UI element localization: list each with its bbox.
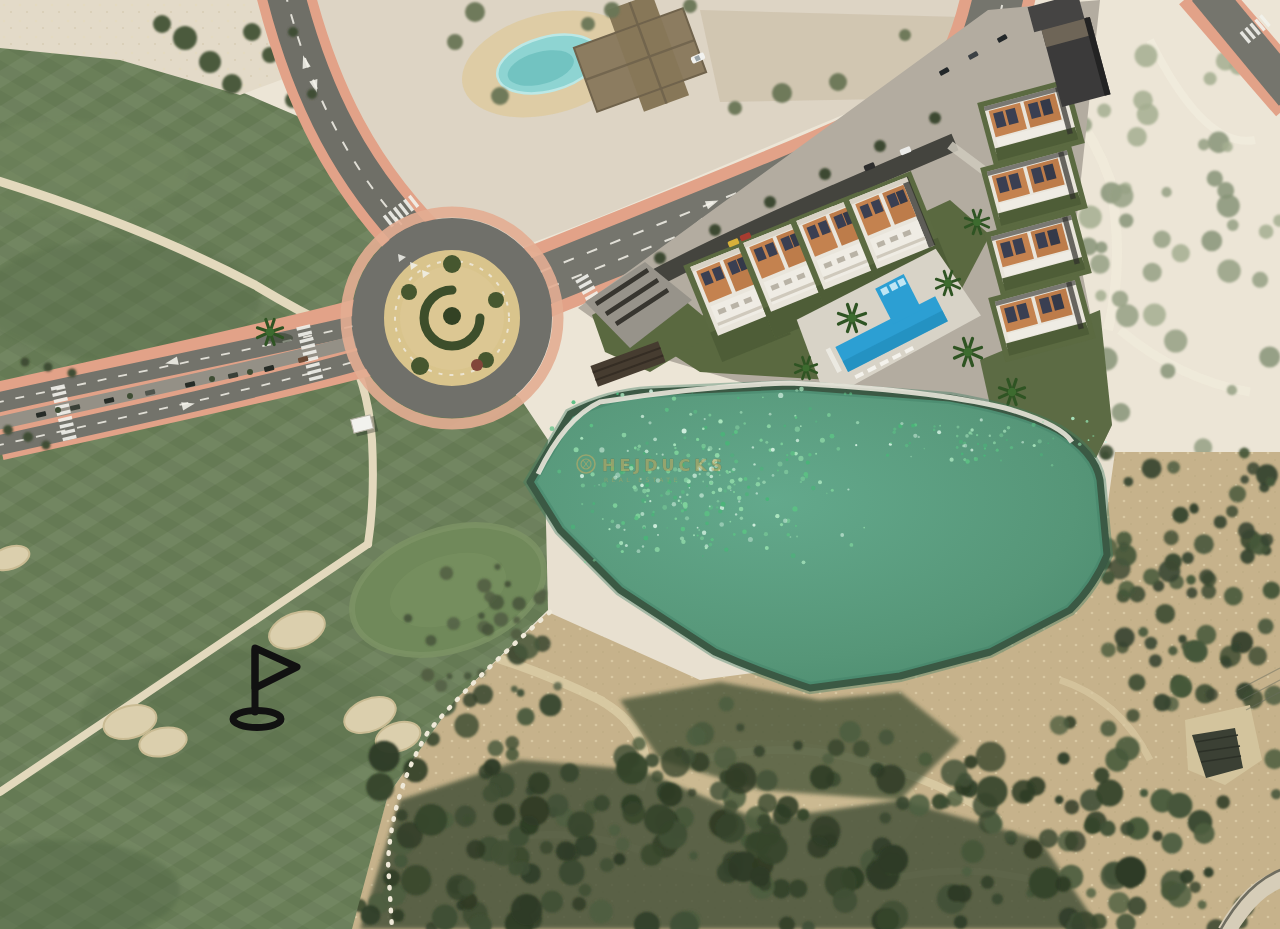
roundabout-center-tree bbox=[443, 307, 461, 325]
aerial-photo: HEJDUCKS REAL ESTATE bbox=[0, 0, 1280, 929]
watermark-tagline-text: REAL ESTATE bbox=[604, 476, 681, 483]
watermark-brand-text: HEJDUCKS bbox=[602, 456, 726, 475]
roundabout bbox=[346, 212, 558, 424]
